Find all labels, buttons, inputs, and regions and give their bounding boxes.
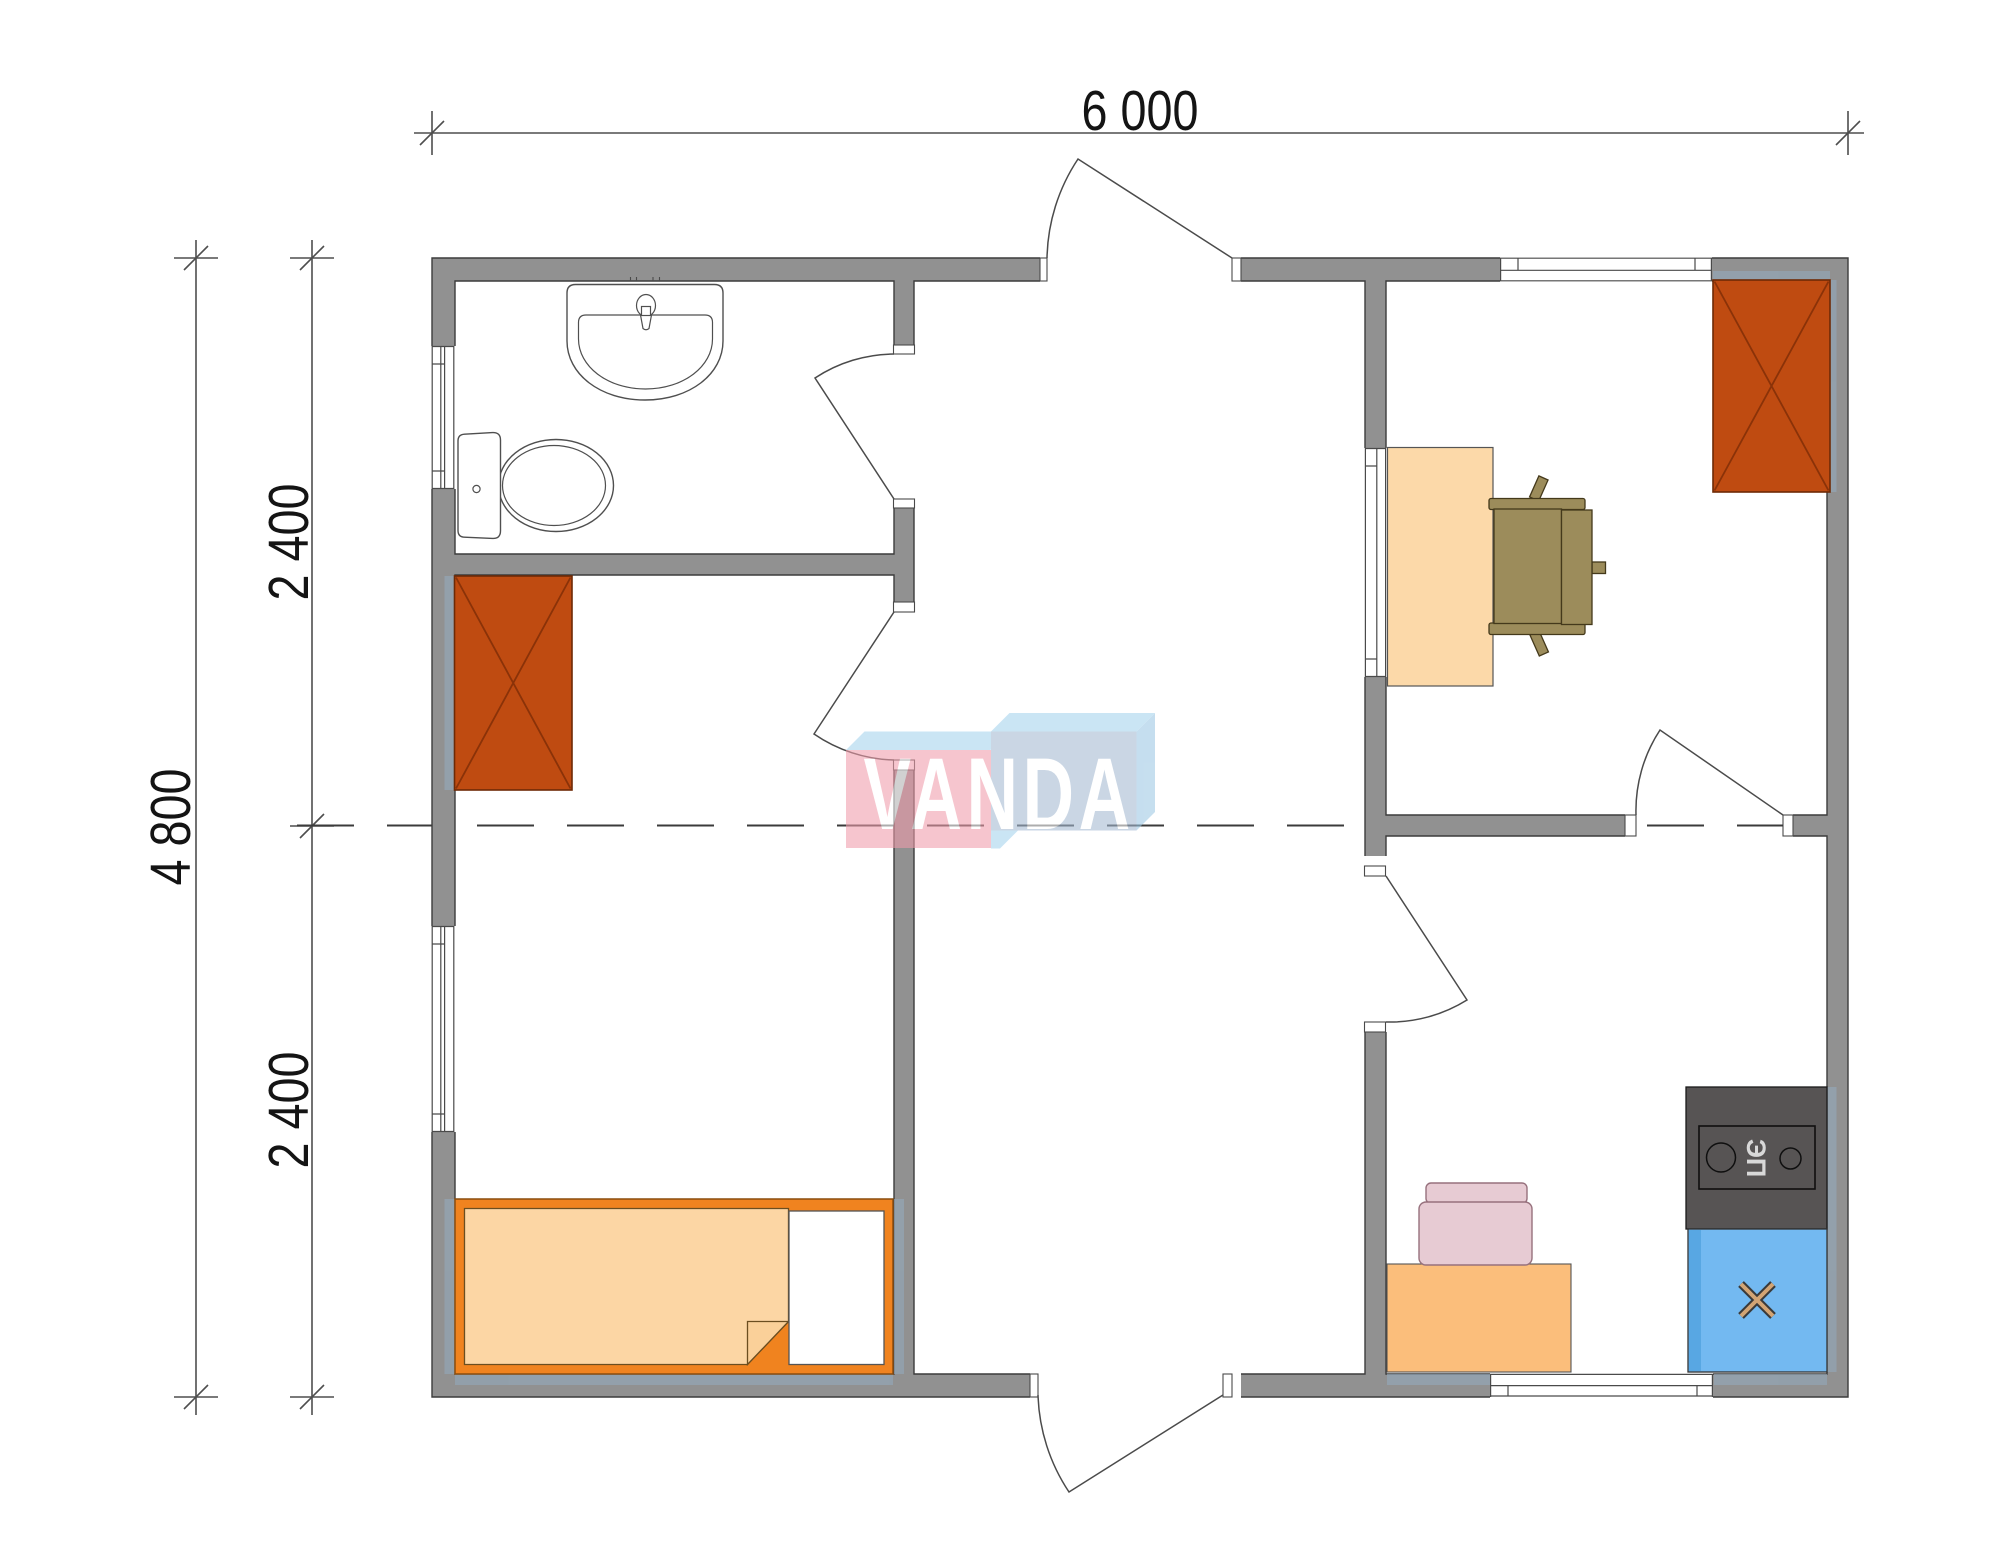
- svg-text:6 000: 6 000: [1082, 80, 1199, 143]
- svg-text:2 400: 2 400: [258, 1052, 321, 1169]
- svg-text:4 800: 4 800: [140, 769, 203, 886]
- svg-text:2 400: 2 400: [258, 484, 321, 601]
- svg-text:VANDA: VANDA: [864, 736, 1135, 851]
- svg-text:ЭП: ЭП: [1741, 1139, 1771, 1178]
